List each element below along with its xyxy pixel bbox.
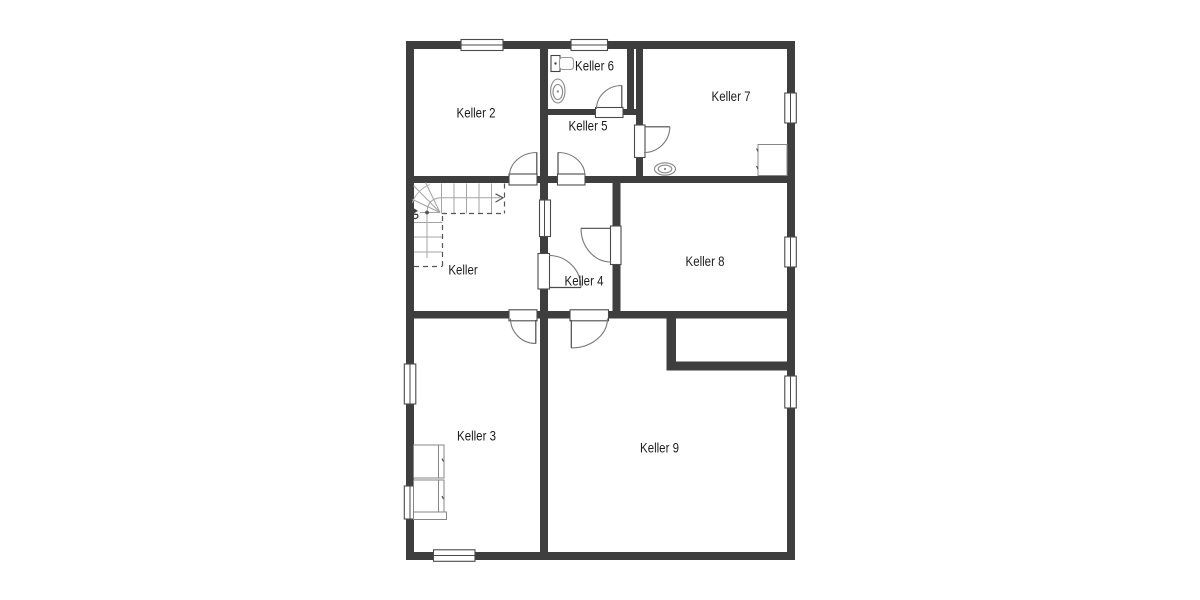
svg-text:Keller: Keller (448, 261, 478, 277)
svg-text:Keller 3: Keller 3 (457, 427, 496, 443)
svg-text:Keller 7: Keller 7 (712, 88, 751, 104)
svg-text:Keller 6: Keller 6 (575, 57, 614, 73)
svg-text:Keller 4: Keller 4 (565, 272, 604, 288)
svg-text:Keller 2: Keller 2 (457, 104, 496, 120)
svg-text:Keller 9: Keller 9 (640, 439, 679, 455)
svg-text:Keller 8: Keller 8 (686, 253, 725, 269)
svg-text:Keller 5: Keller 5 (569, 117, 608, 133)
